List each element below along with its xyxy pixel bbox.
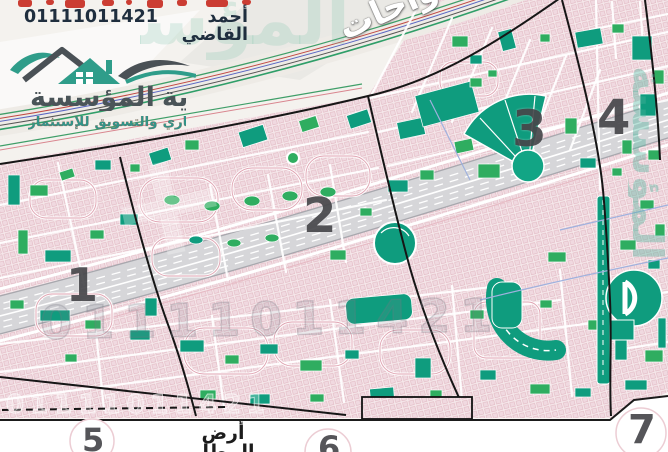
phone-watermark-small: 01111011421	[6, 392, 271, 418]
logo-subtitle: للإستثمار والتسويق العقاري	[28, 116, 186, 130]
district-number-3: 3	[512, 104, 547, 154]
roundabout	[287, 152, 299, 164]
district-number-2: 2	[303, 192, 336, 240]
brand-watermark-right: المؤسسة العقارية	[628, 40, 668, 260]
logo-subtitle-word: للإستثمار	[28, 116, 90, 130]
airport-land-label: أرض المطار	[168, 424, 278, 452]
district-number-5: 5	[82, 424, 104, 452]
district-number-4: 4	[597, 94, 630, 142]
district-number-6: 6	[318, 432, 340, 452]
logo-title-word: العقارية	[162, 84, 186, 111]
logo-houses-icon	[6, 36, 196, 88]
phone-watermark: 01111011421	[40, 292, 503, 346]
logo-title-word: المؤسسة	[30, 84, 155, 111]
district-number-1: 1	[66, 262, 98, 308]
logo-subtitle-word: والتسويق	[95, 116, 158, 130]
real-estate-flyer: المؤسسة العقارية المؤسسة العقارية 011110…	[0, 0, 668, 452]
logo-title: المؤسسة العقارية	[30, 84, 186, 111]
district-number-7: 7	[628, 410, 656, 450]
logo-subtitle-word: العقاري	[163, 116, 186, 130]
round-park	[374, 222, 416, 264]
